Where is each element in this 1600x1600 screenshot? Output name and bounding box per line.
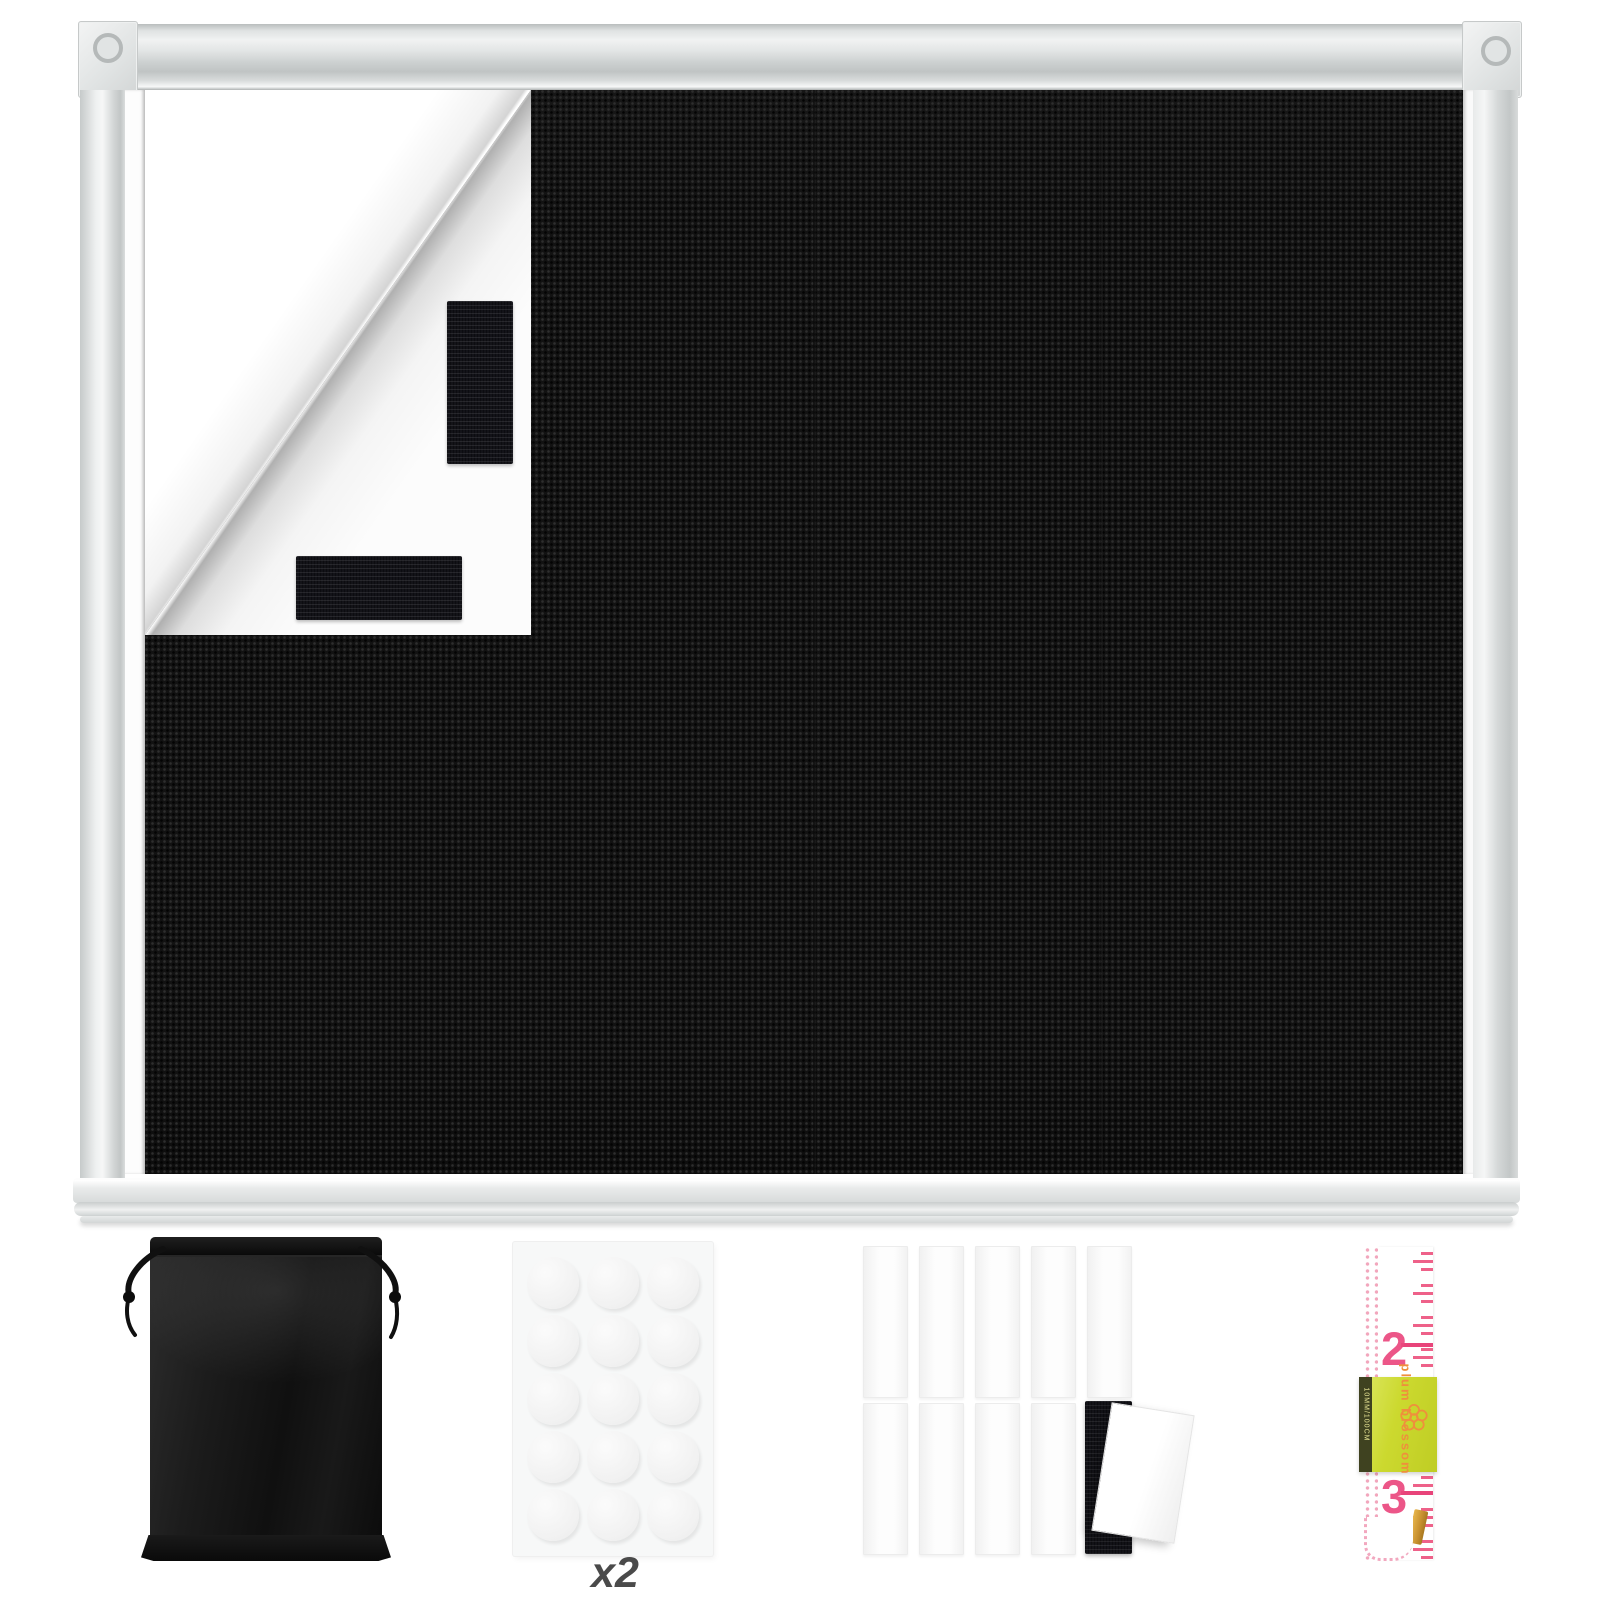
adhesive-dot: [527, 1257, 579, 1309]
hook-loop-strips-grid: [863, 1246, 1131, 1558]
window-frame-left-bar: [80, 90, 125, 1178]
adhesive-dots-sheet: [513, 1242, 713, 1556]
product-photo: x2 2 3 10MM/100CM plum blossom: [0, 0, 1600, 1600]
window-inner-edge-right: [1463, 90, 1473, 1174]
tape-folded-end: [1364, 1517, 1413, 1561]
measuring-tape: 2 3 10MM/100CM plum blossom: [1363, 1247, 1433, 1560]
adhesive-dot: [647, 1489, 699, 1541]
bag-bottom: [141, 1535, 391, 1561]
frame-corner-block-left: [78, 21, 138, 98]
dots-multiplier-label: x2: [573, 1550, 657, 1596]
loop-strip-white: [919, 1246, 964, 1398]
loop-strip-white: [975, 1246, 1020, 1398]
window-sill: [73, 1178, 1520, 1224]
loop-strip-white: [919, 1403, 964, 1555]
plum-blossom-flower-icon: [1399, 1403, 1429, 1433]
loop-strip-white: [863, 1246, 908, 1398]
adhesive-dot: [587, 1431, 639, 1483]
screw-icon: [93, 33, 123, 63]
frame-corner-block-right: [1462, 21, 1522, 98]
band-side-label: 10MM/100CM: [1359, 1377, 1372, 1472]
adhesive-dot: [587, 1373, 639, 1425]
velcro-patch-horizontal: [296, 556, 462, 620]
adhesive-dot: [527, 1431, 579, 1483]
peeled-corner: [145, 90, 531, 635]
adhesive-dot: [647, 1373, 699, 1425]
adhesive-dot: [527, 1489, 579, 1541]
adhesive-dot: [647, 1431, 699, 1483]
sill-face: [73, 1178, 1520, 1203]
window-inner-edge-left: [125, 90, 145, 1174]
loop-strip-white: [975, 1403, 1020, 1555]
storage-bag: [150, 1237, 382, 1561]
adhesive-dot: [587, 1489, 639, 1541]
sill-molding: [74, 1202, 1519, 1216]
loop-strip-white: [1031, 1403, 1076, 1555]
adhesive-dot: [587, 1257, 639, 1309]
sill-base: [80, 1216, 1513, 1223]
window-frame-top-bar: [80, 24, 1518, 90]
loop-strip-white: [863, 1403, 908, 1555]
window-frame-right-bar: [1473, 90, 1518, 1178]
hook-loop-strips-panel: [863, 1246, 1131, 1558]
adhesive-dot: [587, 1315, 639, 1367]
tape-number: 3: [1381, 1469, 1407, 1524]
drawstring-cords-icon: [115, 1233, 415, 1345]
screw-icon: [1481, 36, 1511, 66]
adhesive-dot: [527, 1373, 579, 1425]
loop-strip-white: [1031, 1246, 1076, 1398]
fabric-seam: [813, 90, 816, 1174]
adhesive-dot: [527, 1315, 579, 1367]
velcro-patch-vertical: [447, 301, 513, 464]
tape-brand-band: 10MM/100CM plum blossom: [1359, 1377, 1437, 1472]
adhesive-dot: [647, 1315, 699, 1367]
fabric-seam: [1100, 90, 1103, 1174]
loop-strip-white: [1087, 1246, 1132, 1398]
adhesive-dot: [647, 1257, 699, 1309]
